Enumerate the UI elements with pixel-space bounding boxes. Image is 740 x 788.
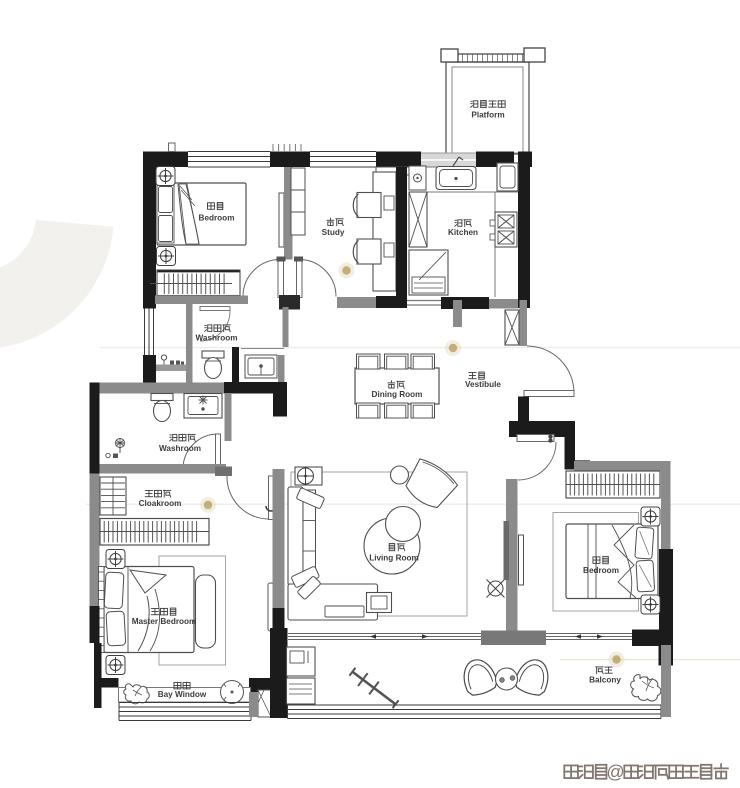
svg-text:Washroom: Washroom (195, 334, 237, 343)
svg-text:Bedroom: Bedroom (583, 566, 619, 575)
svg-text:@: @ (606, 762, 624, 782)
svg-text:Platform: Platform (471, 111, 504, 120)
svg-text:Dining Room: Dining Room (372, 390, 423, 399)
svg-text:Cloakroom: Cloakroom (139, 499, 182, 508)
svg-text:Bay Window: Bay Window (158, 690, 207, 699)
svg-text:Washroom: Washroom (159, 444, 201, 453)
svg-text:Living Room: Living Room (369, 554, 419, 563)
svg-text:Bedroom: Bedroom (199, 214, 235, 223)
svg-text:Kitchen: Kitchen (448, 228, 478, 237)
svg-text:Balcony: Balcony (589, 676, 621, 685)
svg-text:Vestibule: Vestibule (465, 380, 501, 389)
svg-text:Study: Study (322, 228, 345, 237)
svg-text:Master Bedroom: Master Bedroom (132, 617, 197, 626)
